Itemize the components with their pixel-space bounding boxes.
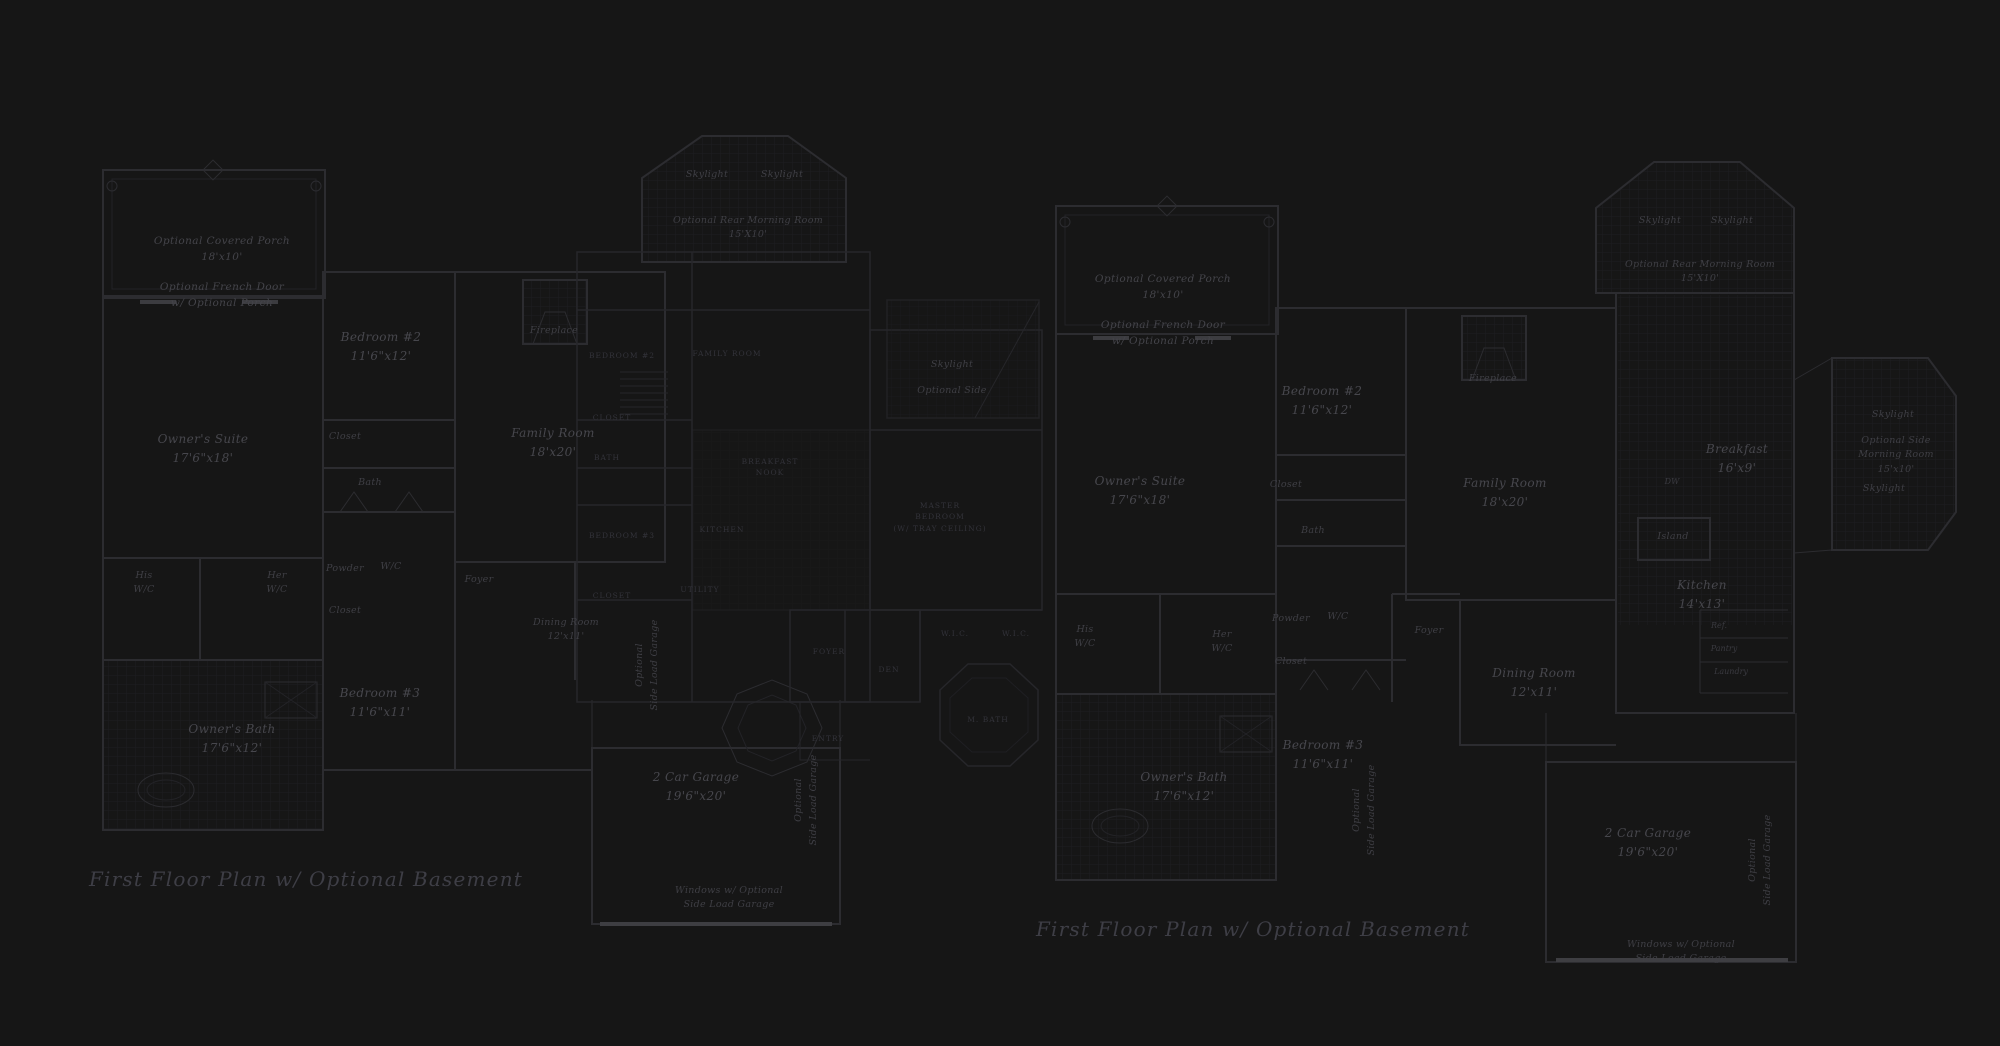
label-french-door-left-line: w/ Optional Porch (160, 296, 284, 312)
label-closet-lower-right-line: Closet (1275, 655, 1307, 669)
label-mid-family-room-line: FAMILY ROOM (692, 348, 761, 359)
label-foyer-left-line: Foyer (465, 573, 494, 587)
label-closet-lower-left-line: Closet (329, 604, 361, 618)
label-side-morning-room-right-line: Morning Room (1858, 448, 1934, 462)
label-family-room-right-line: 18'x20' (1463, 493, 1547, 512)
label-owners-bath-left-line: 17'6"x12' (188, 739, 275, 758)
label-powder-left-line: Powder (326, 562, 364, 576)
label-pantry-right: Pantry (1711, 643, 1738, 654)
label-bedroom2-right-line: Bedroom #2 (1282, 382, 1363, 401)
label-fireplace-left: Fireplace (530, 324, 578, 338)
label-mid-breakfast-nook-line: BREAKFAST (742, 456, 799, 467)
label-foyer-left: Foyer (465, 573, 494, 587)
label-mid-foyer: FOYER (813, 646, 845, 657)
label-family-room-left: Family Room18'x20' (511, 424, 595, 461)
label-owners-suite-right: Owner's Suite17'6"x18' (1095, 472, 1186, 509)
label-porch-label-right-line: 18'x10' (1095, 288, 1231, 304)
label-her-wc-left: HerW/C (266, 569, 287, 598)
label-family-room-left-line: Family Room (511, 424, 595, 443)
label-title-right-line: First Floor Plan w/ Optional Basement (1036, 916, 1470, 942)
label-laundry-right-line: Laundry (1714, 666, 1748, 677)
label-windows-note-left-line: Windows w/ Optional (675, 884, 783, 898)
label-kitchen-right: Kitchen14'x13' (1677, 576, 1727, 613)
label-mid-closet-a: CLOSET (593, 412, 631, 423)
label-breakfast-right-line: 16'x9' (1706, 459, 1768, 478)
label-closet-upper-left: Closet (329, 430, 361, 444)
label-garage-left: 2 Car Garage19'6"x20' (653, 768, 740, 805)
label-powder-right: Powder (1272, 612, 1310, 626)
label-mid-mbath: M. BATH (967, 714, 1009, 725)
label-garage-right: 2 Car Garage19'6"x20' (1605, 824, 1692, 861)
label-her-wc-left-line: Her (266, 569, 287, 583)
label-side-morning-room-right-line: Optional Side (1858, 434, 1934, 448)
label-mid-master-bedroom-line: (W/ TRAY CEILING) (893, 523, 986, 534)
label-owners-bath-right: Owner's Bath17'6"x12' (1140, 768, 1227, 805)
label-mid-utility-line: UTILITY (680, 584, 719, 595)
label-side-load-vert-left-b-line: Side Load Garage (806, 754, 821, 845)
label-mid-wic-b: W.I.C. (1002, 628, 1030, 639)
label-mid-bedroom2: BEDROOM #2 (589, 350, 655, 361)
label-side-skylight-right-b-line: Skylight (1863, 482, 1905, 496)
label-mid-breakfast-nook: BREAKFASTNOOK (742, 456, 799, 479)
label-bedroom3-right: Bedroom #311'6"x11' (1283, 736, 1364, 773)
label-mid-optional-side: Optional Side (917, 384, 986, 398)
label-french-door-left-line: Optional French Door (160, 280, 284, 296)
label-dining-room-left-line: Dining Room (533, 616, 599, 630)
label-powder-left: Powder (326, 562, 364, 576)
label-skylight-right-b-line: Skylight (1711, 214, 1753, 228)
label-mid-skylight-line: Skylight (931, 358, 973, 372)
label-foyer-right: Foyer (1415, 624, 1444, 638)
label-breakfast-right-line: Breakfast (1706, 440, 1768, 459)
label-skylight-right-a: Skylight (1639, 214, 1681, 228)
label-mid-mbath-line: M. BATH (967, 714, 1009, 725)
label-mid-entry: ENTRY (812, 733, 844, 744)
label-bedroom3-left-line: Bedroom #3 (340, 684, 421, 703)
label-skylight-left-a-line: Skylight (686, 168, 728, 182)
label-mid-closet-b: CLOSET (593, 590, 631, 601)
label-mid-bath: BATH (594, 452, 620, 463)
label-his-wc-right: HisW/C (1074, 623, 1095, 652)
label-side-load-vert-right-a-line: Optional (1349, 764, 1364, 855)
label-bedroom3-right-line: 11'6"x11' (1283, 755, 1364, 774)
label-his-wc-left-line: W/C (133, 583, 154, 597)
label-bedroom2-left-line: 11'6"x12' (341, 347, 422, 366)
label-garage-left-line: 2 Car Garage (653, 768, 740, 787)
label-her-wc-right-line: W/C (1211, 642, 1232, 656)
label-bedroom3-right-line: Bedroom #3 (1283, 736, 1364, 755)
label-garage-right-line: 19'6"x20' (1605, 843, 1692, 862)
label-skylight-right-b: Skylight (1711, 214, 1753, 228)
label-wc-right-line: W/C (1327, 610, 1348, 624)
label-bedroom2-left-line: Bedroom #2 (341, 328, 422, 347)
label-mid-kitchen-line: KITCHEN (700, 524, 745, 535)
label-rear-morning-room-left-line: 15'X10' (673, 228, 823, 242)
label-bath-left: Bath (358, 476, 382, 490)
label-owners-bath-left: Owner's Bath17'6"x12' (188, 720, 275, 757)
label-mid-closet-b-line: CLOSET (593, 590, 631, 601)
label-bedroom2-left: Bedroom #211'6"x12' (341, 328, 422, 365)
label-bath-left-line: Bath (358, 476, 382, 490)
label-dining-room-right-line: 12'x11' (1492, 683, 1576, 702)
label-mid-bedroom3: BEDROOM #3 (589, 530, 655, 541)
label-french-door-right-line: Optional French Door (1101, 318, 1225, 334)
label-mid-wic-b-line: W.I.C. (1002, 628, 1030, 639)
label-side-load-vert-right-b-line: Side Load Garage (1760, 814, 1775, 905)
label-side-load-vert-left-b: OptionalSide Load Garage (791, 754, 821, 845)
label-family-room-left-line: 18'x20' (511, 443, 595, 462)
label-island-right-line: Island (1657, 530, 1688, 544)
label-skylight-right-a-line: Skylight (1639, 214, 1681, 228)
label-mid-foyer-line: FOYER (813, 646, 845, 657)
label-kitchen-right-line: 14'x13' (1677, 595, 1727, 614)
label-porch-label-left-line: 18'x10' (154, 250, 290, 266)
label-mid-entry-line: ENTRY (812, 733, 844, 744)
label-rear-morning-room-right-line: 15'X10' (1625, 272, 1775, 286)
label-side-load-vert-left-a-line: Optional (632, 619, 647, 710)
label-her-wc-right: HerW/C (1211, 628, 1232, 657)
label-dw-right-line: DW (1665, 476, 1680, 487)
label-ref-right: Ref. (1711, 620, 1727, 631)
label-fireplace-right-line: Fireplace (1469, 372, 1517, 386)
label-dining-room-left-line: 12'x11' (533, 630, 599, 644)
label-side-load-vert-left-a-line: Side Load Garage (647, 619, 662, 710)
label-skylight-left-b-line: Skylight (761, 168, 803, 182)
label-mid-den: DEN (878, 664, 899, 675)
label-mid-wic-a-line: W.I.C. (941, 628, 969, 639)
room-labels: Optional Covered Porch18'x10'Optional Fr… (0, 0, 2000, 1046)
label-garage-right-line: 2 Car Garage (1605, 824, 1692, 843)
label-mid-bedroom2-line: BEDROOM #2 (589, 350, 655, 361)
label-french-door-left: Optional French Doorw/ Optional Porch (160, 280, 284, 312)
label-side-load-vert-right-a: OptionalSide Load Garage (1349, 764, 1379, 855)
label-garage-left-line: 19'6"x20' (653, 787, 740, 806)
label-french-door-right: Optional French Doorw/ Optional Porch (1101, 318, 1225, 350)
label-mid-den-line: DEN (878, 664, 899, 675)
label-breakfast-right: Breakfast16'x9' (1706, 440, 1768, 477)
label-mid-bath-line: BATH (594, 452, 620, 463)
label-side-morning-room-right-line: 15'x10' (1858, 463, 1934, 477)
label-mid-master-bedroom: MASTERBEDROOM(W/ TRAY CEILING) (893, 500, 986, 534)
label-mid-wic-a: W.I.C. (941, 628, 969, 639)
label-title-left-line: First Floor Plan w/ Optional Basement (89, 866, 523, 892)
label-windows-note-right-line: Side Load Garage (1627, 952, 1735, 966)
label-island-right: Island (1657, 530, 1688, 544)
label-mid-utility: UTILITY (680, 584, 719, 595)
label-closet-lower-right: Closet (1275, 655, 1307, 669)
label-owners-bath-right-line: Owner's Bath (1140, 768, 1227, 787)
label-side-skylight-right-a-line: Skylight (1872, 408, 1914, 422)
label-side-load-vert-right-a-line: Side Load Garage (1364, 764, 1379, 855)
label-his-wc-left: HisW/C (133, 569, 154, 598)
label-owners-suite-right-line: 17'6"x18' (1095, 491, 1186, 510)
label-bedroom3-left-line: 11'6"x11' (340, 703, 421, 722)
label-side-load-vert-right-b: OptionalSide Load Garage (1745, 814, 1775, 905)
label-bedroom2-right-line: 11'6"x12' (1282, 401, 1363, 420)
label-kitchen-right-line: Kitchen (1677, 576, 1727, 595)
label-powder-right-line: Powder (1272, 612, 1310, 626)
label-owners-bath-left-line: Owner's Bath (188, 720, 275, 739)
label-windows-note-right-line: Windows w/ Optional (1627, 938, 1735, 952)
label-rear-morning-room-left: Optional Rear Morning Room15'X10' (673, 214, 823, 243)
label-wc-right: W/C (1327, 610, 1348, 624)
label-windows-note-left: Windows w/ OptionalSide Load Garage (675, 884, 783, 913)
label-side-morning-room-right: Optional SideMorning Room15'x10' (1858, 434, 1934, 477)
label-dining-room-right: Dining Room12'x11' (1492, 664, 1576, 701)
label-family-room-right: Family Room18'x20' (1463, 474, 1547, 511)
label-dining-room-left: Dining Room12'x11' (533, 616, 599, 645)
label-closet-upper-left-line: Closet (329, 430, 361, 444)
label-skylight-left-a: Skylight (686, 168, 728, 182)
label-laundry-right: Laundry (1714, 666, 1748, 677)
label-his-wc-left-line: His (133, 569, 154, 583)
label-mid-master-bedroom-line: BEDROOM (893, 511, 986, 522)
label-mid-skylight: Skylight (931, 358, 973, 372)
label-owners-bath-right-line: 17'6"x12' (1140, 787, 1227, 806)
label-her-wc-right-line: Her (1211, 628, 1232, 642)
label-mid-bedroom3-line: BEDROOM #3 (589, 530, 655, 541)
label-fireplace-left-line: Fireplace (530, 324, 578, 338)
label-owners-suite-left: Owner's Suite17'6"x18' (158, 430, 249, 467)
label-porch-label-right-line: Optional Covered Porch (1095, 272, 1231, 288)
label-fireplace-right: Fireplace (1469, 372, 1517, 386)
label-mid-closet-a-line: CLOSET (593, 412, 631, 423)
label-ref-right-line: Ref. (1711, 620, 1727, 631)
label-mid-kitchen: KITCHEN (700, 524, 745, 535)
label-owners-suite-right-line: Owner's Suite (1095, 472, 1186, 491)
label-pantry-right-line: Pantry (1711, 643, 1738, 654)
label-closet-lower-left: Closet (329, 604, 361, 618)
label-bath-right-line: Bath (1301, 524, 1325, 538)
label-dining-room-right-line: Dining Room (1492, 664, 1576, 683)
floorplan-sheet: Optional Covered Porch18'x10'Optional Fr… (0, 0, 2000, 1046)
label-bath-right: Bath (1301, 524, 1325, 538)
label-porch-label-right: Optional Covered Porch18'x10' (1095, 272, 1231, 304)
label-his-wc-right-line: His (1074, 623, 1095, 637)
label-windows-note-right: Windows w/ OptionalSide Load Garage (1627, 938, 1735, 967)
label-side-skylight-right-a: Skylight (1872, 408, 1914, 422)
label-rear-morning-room-left-line: Optional Rear Morning Room (673, 214, 823, 228)
label-bedroom2-right: Bedroom #211'6"x12' (1282, 382, 1363, 419)
label-title-right: First Floor Plan w/ Optional Basement (1036, 916, 1470, 942)
label-wc-left-line: W/C (380, 560, 401, 574)
label-his-wc-right-line: W/C (1074, 637, 1095, 651)
label-mid-breakfast-nook-line: NOOK (742, 467, 799, 478)
label-skylight-left-b: Skylight (761, 168, 803, 182)
label-mid-family-room: FAMILY ROOM (692, 348, 761, 359)
label-owners-suite-left-line: 17'6"x18' (158, 449, 249, 468)
label-rear-morning-room-right: Optional Rear Morning Room15'X10' (1625, 258, 1775, 287)
label-bedroom3-left: Bedroom #311'6"x11' (340, 684, 421, 721)
label-foyer-right-line: Foyer (1415, 624, 1444, 638)
label-porch-label-left: Optional Covered Porch18'x10' (154, 234, 290, 266)
label-side-skylight-right-b: Skylight (1863, 482, 1905, 496)
label-owners-suite-left-line: Owner's Suite (158, 430, 249, 449)
label-french-door-right-line: w/ Optional Porch (1101, 334, 1225, 350)
label-windows-note-left-line: Side Load Garage (675, 898, 783, 912)
label-family-room-right-line: Family Room (1463, 474, 1547, 493)
label-dw-right: DW (1665, 476, 1680, 487)
label-rear-morning-room-right-line: Optional Rear Morning Room (1625, 258, 1775, 272)
label-closet-upper-right-line: Closet (1270, 478, 1302, 492)
label-side-load-vert-right-b-line: Optional (1745, 814, 1760, 905)
label-porch-label-left-line: Optional Covered Porch (154, 234, 290, 250)
label-side-load-vert-left-b-line: Optional (791, 754, 806, 845)
label-wc-left: W/C (380, 560, 401, 574)
label-mid-optional-side-line: Optional Side (917, 384, 986, 398)
label-side-load-vert-left-a: OptionalSide Load Garage (632, 619, 662, 710)
label-closet-upper-right: Closet (1270, 478, 1302, 492)
label-title-left: First Floor Plan w/ Optional Basement (89, 866, 523, 892)
label-mid-master-bedroom-line: MASTER (893, 500, 986, 511)
label-her-wc-left-line: W/C (266, 583, 287, 597)
